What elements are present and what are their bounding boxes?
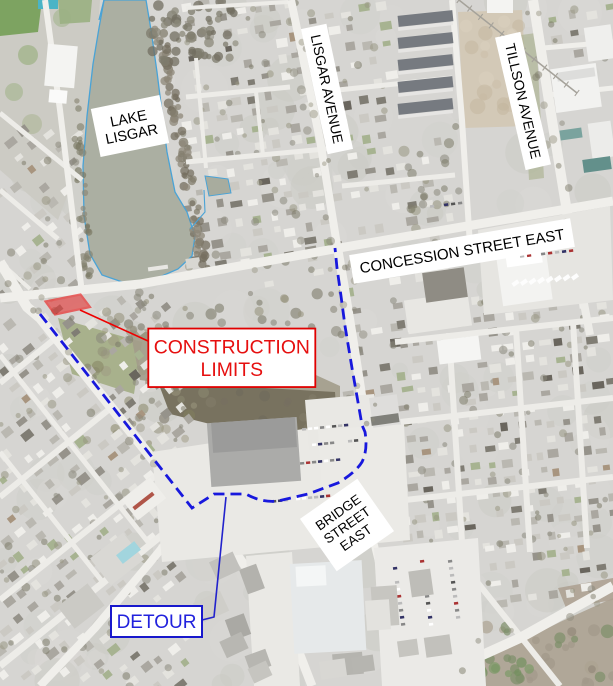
- svg-text:DETOUR: DETOUR: [117, 612, 197, 633]
- svg-text:CONSTRUCTION: CONSTRUCTION: [154, 336, 310, 358]
- svg-text:LIMITS: LIMITS: [201, 359, 264, 381]
